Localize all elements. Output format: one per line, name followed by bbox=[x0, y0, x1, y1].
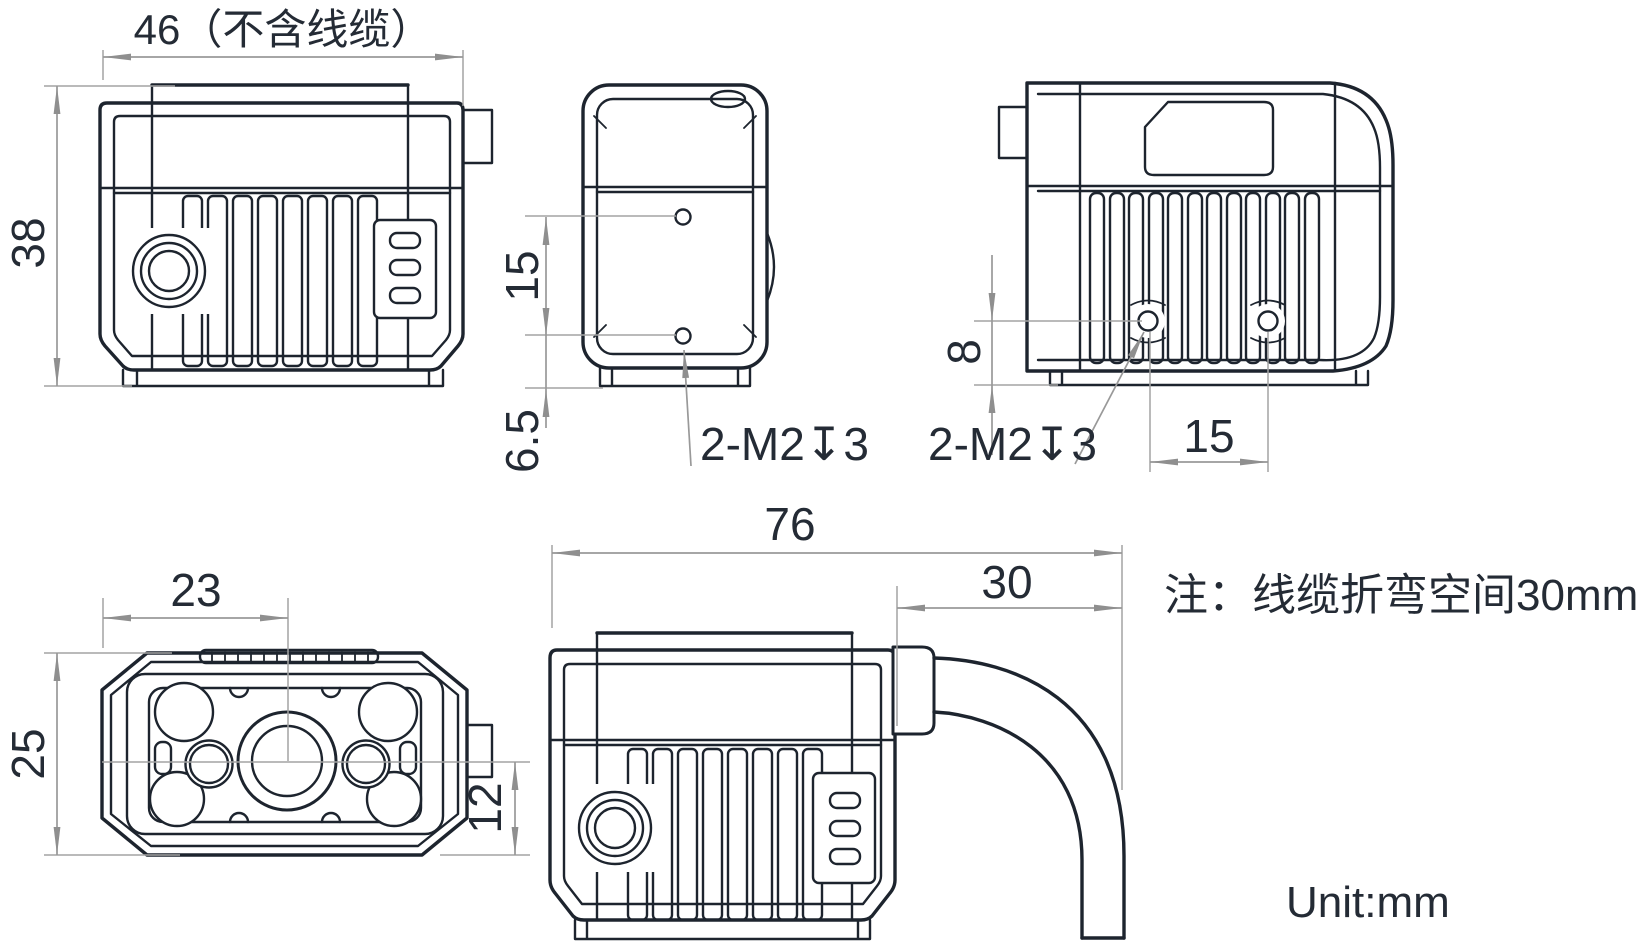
led-panel bbox=[813, 773, 875, 883]
bottom-view bbox=[583, 85, 774, 386]
side-connector-tab bbox=[467, 725, 492, 777]
rear-view bbox=[999, 83, 1393, 385]
cable-gland bbox=[893, 647, 934, 734]
mounting-hole bbox=[676, 210, 691, 225]
dim-depth-25: 25 bbox=[2, 653, 180, 855]
corner-chamfers bbox=[594, 116, 756, 337]
thread-label: 2-M2↧3 bbox=[700, 418, 869, 470]
led-indicator bbox=[390, 288, 420, 303]
dimension-drawing: 46（不含线缆） 38 15 6.5 2-M2↧3 bbox=[0, 0, 1641, 949]
dim-width-label: 46（不含线缆） bbox=[134, 6, 433, 53]
led-indicator bbox=[390, 260, 420, 275]
mounting-foot bbox=[1050, 371, 1368, 385]
cable-side-view bbox=[550, 633, 1124, 939]
dim-hole-base-label: 8 bbox=[938, 339, 990, 365]
body-divider bbox=[1027, 186, 1393, 191]
unit-text: Unit:mm bbox=[1286, 878, 1450, 927]
led-indicator bbox=[830, 849, 860, 864]
body-divider bbox=[550, 740, 895, 745]
mounting-foot bbox=[575, 920, 870, 939]
dim-lens-offset-label: 23 bbox=[170, 564, 221, 616]
dim-hole-spacing-15: 15 6.5 bbox=[496, 216, 676, 473]
label-window bbox=[1145, 102, 1273, 175]
main-lens bbox=[238, 712, 336, 810]
side-connector-tab bbox=[463, 110, 492, 163]
led-indicator bbox=[390, 233, 420, 248]
front-view bbox=[102, 650, 492, 855]
dim-hole-spacing-rear-label: 15 bbox=[1183, 410, 1234, 462]
mounting-foot bbox=[123, 370, 443, 386]
dim-height-label: 38 bbox=[2, 217, 54, 268]
sensor-slot bbox=[400, 742, 416, 774]
led-indicator bbox=[830, 793, 860, 808]
grille bbox=[183, 196, 377, 366]
dim-center-bottom-label: 12 bbox=[459, 782, 511, 833]
dim-hole-edge-label: 6.5 bbox=[496, 409, 548, 473]
mounting-foot bbox=[600, 368, 750, 386]
dim-bend-space-label: 30 bbox=[981, 556, 1032, 608]
note-text: 注：线缆折弯空间30mm bbox=[1164, 571, 1638, 620]
dim-depth-label: 25 bbox=[2, 728, 54, 779]
side-connector-tab bbox=[999, 107, 1027, 158]
indicator-lens bbox=[579, 792, 651, 864]
dimension-drawing-page: 46（不含线缆） 38 15 6.5 2-M2↧3 bbox=[0, 0, 1641, 949]
dim-hole-spacing-label: 15 bbox=[496, 250, 548, 301]
led-panel bbox=[374, 220, 436, 318]
sensor-slot bbox=[155, 742, 171, 774]
indicator-lens bbox=[133, 235, 205, 307]
dim-total-length-label: 76 bbox=[764, 498, 815, 550]
body-divider bbox=[583, 187, 767, 192]
cable bbox=[934, 658, 1124, 938]
mounting-hole bbox=[676, 329, 691, 344]
led-indicator bbox=[830, 821, 860, 836]
side-view bbox=[100, 85, 492, 386]
thread-label: 2-M2↧3 bbox=[928, 418, 1097, 470]
